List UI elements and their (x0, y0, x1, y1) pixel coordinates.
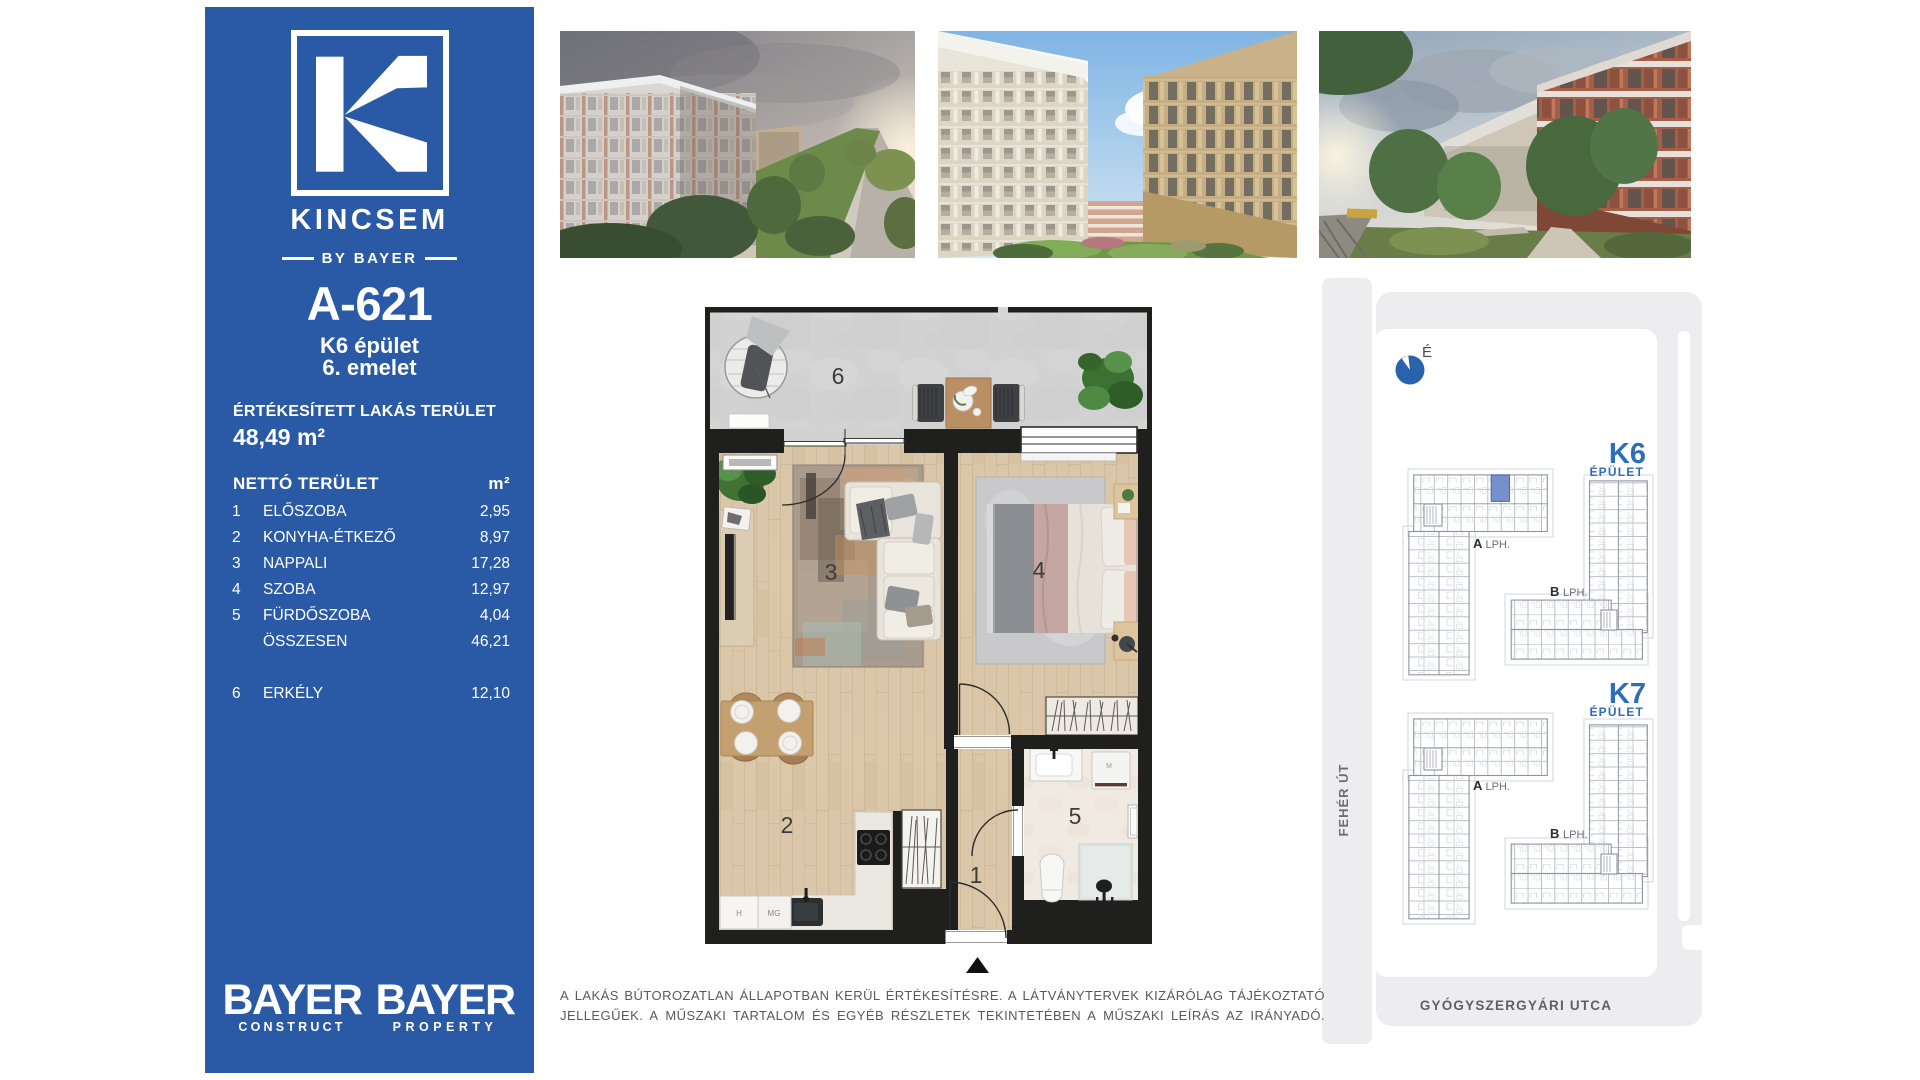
svg-text:H: H (736, 909, 742, 918)
svg-text:MG: MG (768, 909, 781, 918)
svg-text:2: 2 (781, 812, 794, 838)
svg-text:4: 4 (1033, 557, 1046, 583)
svg-text:3: 3 (825, 559, 838, 585)
svg-text:É: É (1422, 344, 1432, 361)
svg-text:GYÓGYSZERGYÁRI UTCA: GYÓGYSZERGYÁRI UTCA (1420, 998, 1612, 1013)
svg-text:6: 6 (832, 363, 845, 389)
svg-text:B LPH.: B LPH. (1550, 584, 1587, 599)
svg-text:A LPH.: A LPH. (1473, 536, 1510, 551)
svg-text:FEHÉR ÚT: FEHÉR ÚT (1336, 764, 1351, 837)
svg-text:A LPH.: A LPH. (1473, 778, 1510, 793)
svg-text:ÉPÜLET: ÉPÜLET (1589, 464, 1644, 479)
svg-text:M: M (1106, 763, 1112, 770)
svg-text:B LPH.: B LPH. (1550, 826, 1587, 841)
svg-text:ÉPÜLET: ÉPÜLET (1589, 704, 1644, 719)
svg-text:5: 5 (1069, 803, 1082, 829)
svg-text:1: 1 (970, 862, 983, 888)
